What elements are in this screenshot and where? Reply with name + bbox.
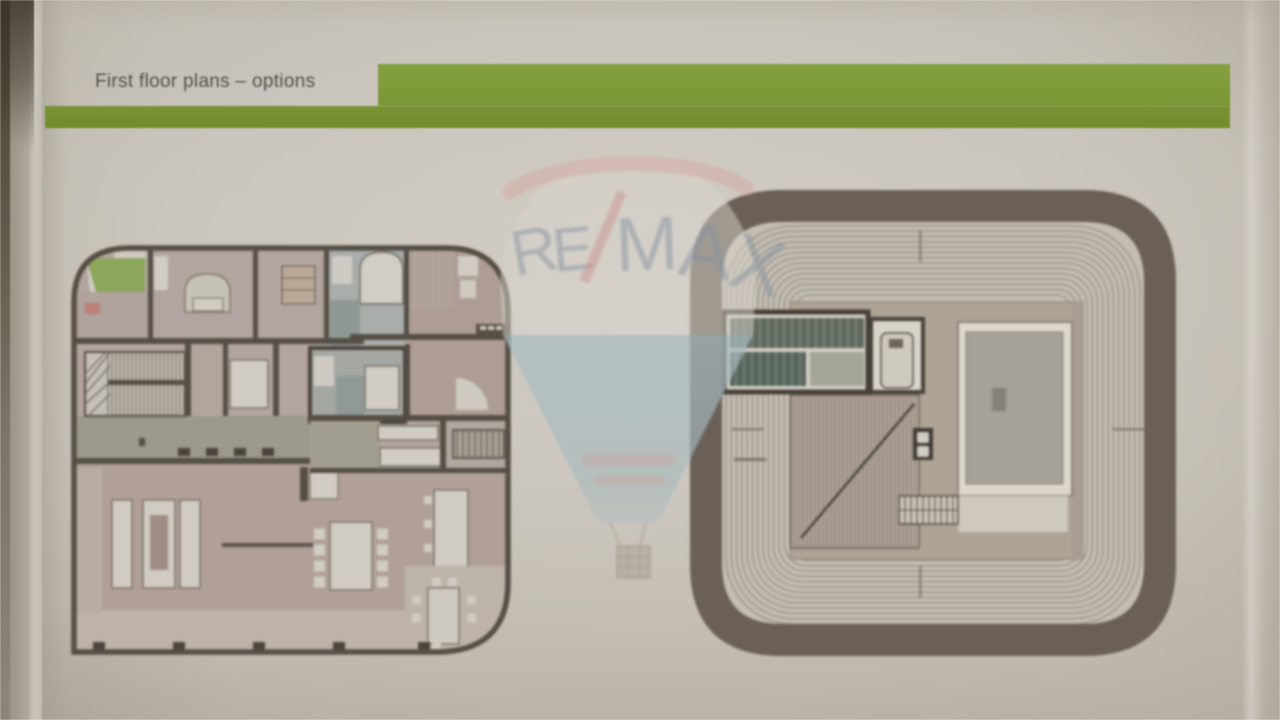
svg-text:M: M bbox=[614, 201, 680, 288]
